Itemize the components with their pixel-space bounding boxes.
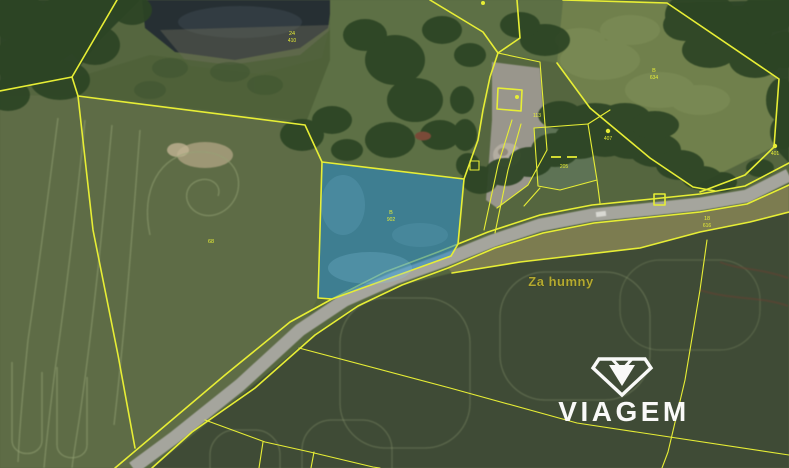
parcel-number-label: 68 xyxy=(208,239,214,245)
parcel-number-label: B xyxy=(652,68,656,74)
parcel-number-label: 18 xyxy=(704,216,710,222)
parcel-number-label: 401 xyxy=(771,151,780,157)
point-marker xyxy=(515,95,519,99)
map-canvas: 24 410 68 B 902 B 634 18 616 205 407 401… xyxy=(0,0,789,468)
point-marker xyxy=(773,144,777,148)
watermark-brand-text: VIAGEM xyxy=(558,396,689,427)
region-name-label: Za humny xyxy=(528,274,594,289)
parcel-number-label: 24 xyxy=(289,31,295,37)
parcel-number-label: 113 xyxy=(533,113,541,119)
point-marker xyxy=(606,129,610,133)
aerial-cadastral-map: 24 410 68 B 902 B 634 18 616 205 407 401… xyxy=(0,0,789,468)
parcel-number-label: B xyxy=(389,210,393,216)
debris-object xyxy=(415,132,431,141)
parcel-number-label: 407 xyxy=(604,136,613,142)
parcel-number-label: 634 xyxy=(650,75,659,81)
point-marker xyxy=(481,1,485,5)
parcel-number-label: 902 xyxy=(387,217,396,223)
parcel-number-label: 410 xyxy=(288,38,297,44)
parcel-number-label: 205 xyxy=(560,164,569,170)
parcel-number-label: 616 xyxy=(703,223,712,229)
